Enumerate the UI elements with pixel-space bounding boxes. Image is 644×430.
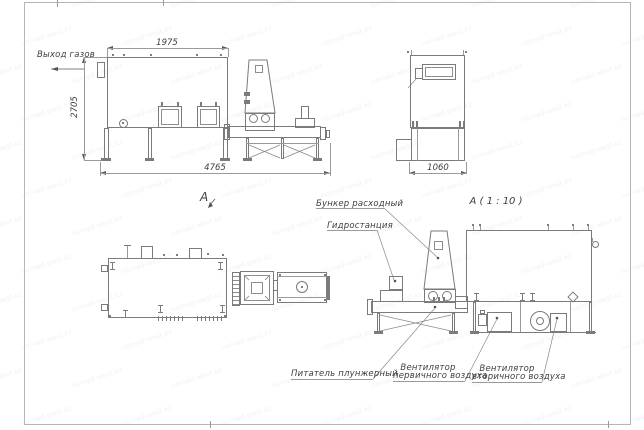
view-a-label: А <box>200 190 208 204</box>
feeder-bolt <box>438 297 440 301</box>
feeder-tube <box>371 301 468 313</box>
hopper-tab <box>244 100 250 104</box>
foot <box>313 158 322 161</box>
feeder-end-nub <box>326 130 330 138</box>
fan-secondary-hub <box>536 317 544 325</box>
top-bolt-dot <box>472 224 474 226</box>
plan-bump <box>189 248 202 259</box>
top-bolt <box>548 226 549 230</box>
dim-2705: 2705 <box>70 87 80 127</box>
plan-bump <box>141 246 153 259</box>
plan-bolt <box>224 315 226 317</box>
opening-flange <box>415 68 423 79</box>
frame-post <box>589 302 592 332</box>
louver-strip <box>158 316 185 321</box>
air-port <box>261 114 270 123</box>
border-tick <box>210 421 211 428</box>
callout-fan-secondary-l2: вторичного воздуха <box>472 372 542 382</box>
roof-bolt <box>123 54 125 56</box>
hydro-station-box <box>389 276 403 290</box>
anchor-mark <box>160 305 161 313</box>
frame-inner-post <box>520 302 521 332</box>
dim-line <box>409 173 467 174</box>
chute-pipe <box>301 106 309 119</box>
plan-bolt <box>176 254 178 256</box>
top-bolt-dot <box>479 224 481 226</box>
frame-rail <box>246 143 319 144</box>
base-bolt <box>416 121 418 128</box>
top-bolt <box>480 226 481 230</box>
border-tick <box>57 0 58 7</box>
roof-bolt <box>196 54 198 56</box>
frame-post <box>281 138 284 159</box>
hatch-bolt <box>161 102 163 106</box>
dim-1975: 1975 <box>137 38 197 48</box>
border-tick <box>163 0 164 6</box>
opening-inner <box>425 67 453 77</box>
corner-tick <box>463 50 464 55</box>
side-box <box>396 139 412 161</box>
hatch-box-inner <box>161 109 179 125</box>
roof-bolt <box>150 54 152 56</box>
detail-view-title: А ( 1 : 10 ) <box>466 196 526 207</box>
lifting-hook <box>592 241 599 248</box>
dim-ext <box>330 143 331 176</box>
feeder-bolt <box>443 297 445 301</box>
anchor-mark <box>220 262 221 270</box>
side-lug <box>101 265 108 272</box>
top-bolt <box>573 226 574 230</box>
gas-outlet-label: Выход газов <box>37 50 95 60</box>
leg <box>104 128 109 160</box>
callout-underline <box>472 382 542 383</box>
feeder-cap <box>367 299 373 315</box>
shaft-center <box>301 286 303 288</box>
gas-outlet-flange <box>97 62 105 78</box>
base-inner-line <box>458 128 459 161</box>
fan-primary-motor <box>478 314 487 326</box>
top-bolt-dot <box>572 224 574 226</box>
antenna <box>127 246 128 258</box>
foot <box>145 158 154 161</box>
plan-bolt <box>109 315 111 317</box>
frame-post <box>452 313 455 333</box>
roof-bolt <box>220 54 222 56</box>
dim-line <box>100 173 330 174</box>
feeder-cap <box>224 124 230 140</box>
fan-secondary-motor <box>550 313 567 332</box>
base-bolt <box>463 121 465 128</box>
callout-fan-primary-l2: первичного воздуха <box>393 371 463 381</box>
housing-bolt <box>324 274 326 276</box>
frame-post <box>473 302 476 332</box>
drawing-sheet: nomad-west.kznomad-west.kznomad-west.kzn… <box>0 0 644 430</box>
hopper-door <box>255 65 263 73</box>
roof-bolt <box>112 54 114 56</box>
louver-strip <box>197 316 224 321</box>
plan-bolt <box>222 254 224 256</box>
dim-ext <box>84 160 101 161</box>
foot <box>449 331 458 334</box>
housing-line <box>277 297 327 298</box>
callout-underline <box>291 379 373 380</box>
foot <box>586 331 595 334</box>
valve-center <box>122 122 124 124</box>
callout-feeder: Питатель плунжерный <box>291 369 398 379</box>
antenna-cap <box>124 245 131 246</box>
dim-line <box>107 48 228 49</box>
dim-1060: 1060 <box>417 163 459 173</box>
anchor-mark <box>532 293 533 301</box>
furnace-plan-body <box>108 258 227 318</box>
feeder-bolt <box>433 297 435 301</box>
hatch-bolt <box>200 102 202 106</box>
feeder-plan-core <box>251 282 263 294</box>
dim-4765: 4765 <box>185 163 245 173</box>
hatch-bolt <box>177 102 179 106</box>
hatch-box-inner <box>200 109 217 125</box>
dim-ext <box>107 48 108 57</box>
foot <box>220 158 230 161</box>
foot <box>101 158 111 161</box>
side-lug <box>101 304 108 311</box>
frame-post <box>246 138 249 159</box>
anchor-mark <box>112 262 113 270</box>
base-bolt <box>459 121 461 128</box>
callout-hydro: Гидростанция <box>327 221 393 231</box>
foot <box>374 331 383 334</box>
dim-ext <box>228 48 229 57</box>
hook-stem <box>592 238 593 242</box>
anchor-mark <box>222 305 223 313</box>
housing-line <box>277 276 327 277</box>
air-port <box>249 114 258 123</box>
plan-bolt <box>163 254 165 256</box>
housing-flange <box>327 276 330 300</box>
corner-bolt <box>465 51 467 53</box>
border-tick <box>608 421 609 428</box>
hopper-tab <box>244 92 250 96</box>
dim-line <box>84 57 85 160</box>
anchor-mark <box>125 310 126 318</box>
corner-tick <box>411 50 412 55</box>
leg <box>148 128 152 160</box>
top-bolt-dot <box>587 224 589 226</box>
fan-primary-box <box>487 312 512 332</box>
base-frame <box>411 128 465 161</box>
plan-bolt <box>207 253 209 255</box>
top-bolt <box>473 226 474 230</box>
frame-inner-post <box>570 302 571 332</box>
foot <box>243 158 252 161</box>
anchor-mark <box>522 293 523 301</box>
housing-bolt <box>279 274 281 276</box>
frame-bottom <box>470 332 596 333</box>
callout-underline <box>393 381 465 382</box>
frame-post <box>316 138 319 159</box>
base-inner-line <box>417 128 418 161</box>
chute-box <box>295 118 315 128</box>
base-bolt <box>412 121 414 128</box>
hopper-door <box>434 241 443 250</box>
housing-bolt <box>279 299 281 301</box>
bolted-flange <box>232 272 240 306</box>
anchor-mark <box>476 293 477 301</box>
fan-primary-knob <box>480 310 485 314</box>
hatch-bolt <box>215 102 217 106</box>
top-bolt-dot <box>547 224 549 226</box>
housing-bolt <box>324 299 326 301</box>
callout-hopper: Бункер расходный <box>316 199 403 209</box>
foot <box>470 331 479 334</box>
frame-post <box>377 313 380 333</box>
corner-bolt <box>407 51 409 53</box>
top-bolt <box>588 226 589 230</box>
